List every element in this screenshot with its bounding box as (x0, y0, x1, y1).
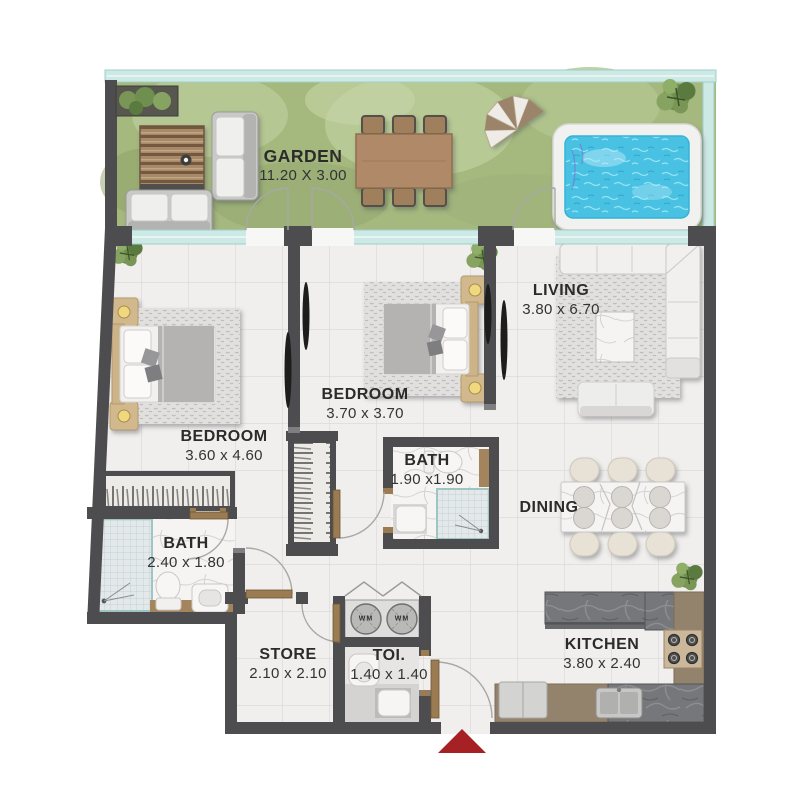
closet-corridor (294, 443, 330, 542)
bath-middle-label: BATH (390, 452, 463, 470)
washer-2-label: WM (395, 616, 409, 623)
bath-left-dims: 2.40 x 1.80 (147, 554, 225, 572)
bedroom-middle-dims: 3.70 x 3.70 (321, 405, 408, 423)
living-label-group: LIVING 3.80 x 6.70 (522, 282, 600, 319)
washer-1-label: WM (359, 616, 373, 623)
bedroom-left-furniture (110, 298, 240, 430)
bedroom-middle-furniture (364, 276, 489, 402)
living-label: LIVING (522, 282, 600, 300)
store-label-group: STORE 2.10 x 2.10 (249, 646, 327, 683)
bedroom-middle-label: BEDROOM (321, 386, 408, 404)
garden-planter (116, 86, 178, 116)
dining-label-group: DINING (520, 499, 579, 517)
store-label: STORE (249, 646, 327, 664)
garden-glass-doors (117, 228, 704, 246)
floor-plan: GARDEN 11.20 X 3.00 BEDROOM 3.60 x 4.60 … (0, 0, 800, 800)
bath-left-label-group: BATH 2.40 x 1.80 (147, 535, 225, 572)
bath-middle-dims: 1.90 x1.90 (390, 471, 463, 489)
bedroom-left-label: BEDROOM (180, 428, 267, 446)
garden-sofa-horizontal (126, 190, 212, 234)
store-dims: 2.10 x 2.10 (249, 665, 327, 683)
living-furniture (556, 244, 700, 416)
garden-label-group: GARDEN 11.20 X 3.00 (259, 146, 347, 185)
garden-dining-set (356, 116, 452, 206)
closet-bedroom-left (106, 476, 230, 506)
bedroom-middle-label-group: BEDROOM 3.70 x 3.70 (321, 386, 408, 423)
toilet-dims: 1.40 x 1.40 (350, 666, 428, 684)
toilet-label: TOI. (350, 647, 428, 665)
kitchen-label: KITCHEN (563, 636, 641, 654)
dining-set (561, 458, 685, 556)
garden-label: GARDEN (259, 146, 347, 166)
bedroom-left-dims: 3.60 x 4.60 (180, 447, 267, 465)
bath-middle-label-group: BATH 1.90 x1.90 (390, 452, 463, 489)
garden-deck (140, 126, 204, 192)
toilet-label-group: TOI. 1.40 x 1.40 (350, 647, 428, 684)
dining-label: DINING (520, 499, 579, 517)
kitchen-dims: 3.80 x 2.40 (563, 655, 641, 673)
bath-left-label: BATH (147, 535, 225, 553)
garden-sofa-vertical (212, 112, 258, 200)
garden-dims: 11.20 X 3.00 (259, 167, 347, 185)
bedroom-left-label-group: BEDROOM 3.60 x 4.60 (180, 428, 267, 465)
garden-pool (553, 124, 701, 230)
kitchen-label-group: KITCHEN 3.80 x 2.40 (563, 636, 641, 673)
living-dims: 3.80 x 6.70 (522, 301, 600, 319)
